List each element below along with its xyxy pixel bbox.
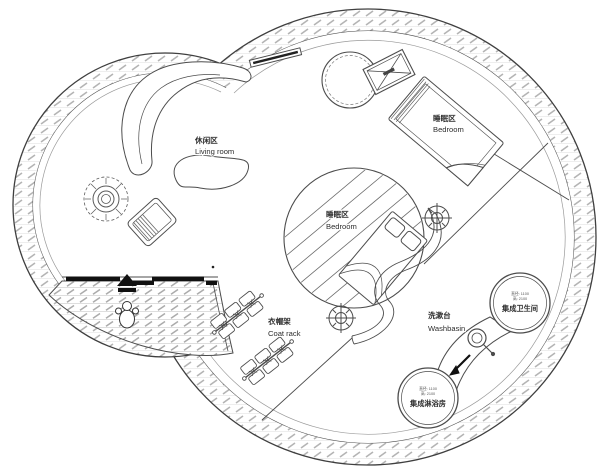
shower-pod-dim2: 高: 2100 — [421, 391, 435, 396]
bedroom-center-label-en: Bedroom — [326, 222, 357, 231]
reference-dot — [212, 266, 215, 269]
bedroom-center-label-zh: 睡眠区 — [326, 209, 349, 219]
bedroom-upper-label-zh: 睡眠区 — [433, 113, 456, 123]
living-zone-label-zh: 休闲区 — [194, 135, 218, 145]
entrance-deck — [49, 277, 233, 356]
toilet-pod-label: 集成卫生间 — [501, 304, 538, 313]
toilet-pod-dim1: 直径: 1100 — [511, 291, 529, 296]
toilet-pod — [490, 273, 550, 333]
floor-plan-canvas: 休闲区 Living room 睡眠区 Bedroom 睡眠区 Bedroom … — [0, 0, 611, 473]
shower-pod-label: 集成淋浴房 — [409, 399, 446, 408]
living-zone-label-en: Living room — [195, 147, 234, 156]
washbasin-label-zh: 洗漱台 — [428, 310, 451, 320]
coat-rack-label-en: Coat rack — [268, 329, 301, 338]
bedroom-upper-label-en: Bedroom — [433, 125, 464, 134]
toilet-pod-dim2: 高: 2100 — [513, 296, 527, 301]
floor-plan: 休闲区 Living room 睡眠区 Bedroom 睡眠区 Bedroom … — [0, 0, 611, 473]
washbasin-label-en: Washbasin — [428, 324, 465, 333]
shower-pod-dim1: 直径: 1100 — [419, 386, 437, 391]
shower-pod — [398, 368, 458, 428]
coat-rack-label-zh: 衣帽架 — [268, 316, 291, 326]
